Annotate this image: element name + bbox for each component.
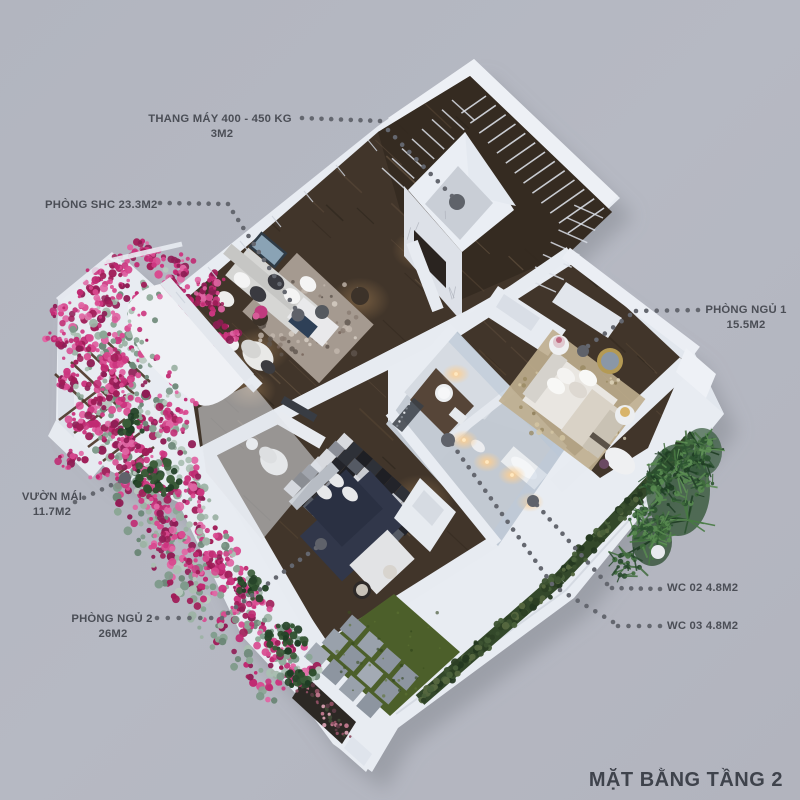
svg-text:11.7M2: 11.7M2 xyxy=(33,506,71,518)
svg-text:MẶT BẰNG TẦNG 2: MẶT BẰNG TẦNG 2 xyxy=(589,767,783,791)
svg-text:3M2: 3M2 xyxy=(211,128,234,140)
svg-text:THANG MÁY 400 - 450 KG: THANG MÁY 400 - 450 KG xyxy=(148,112,292,125)
svg-text:PHÒNG NGỦ 1: PHÒNG NGỦ 1 xyxy=(705,303,786,316)
svg-text:PHÒNG SHC 23.3M2: PHÒNG SHC 23.3M2 xyxy=(45,198,157,211)
svg-text:15.5M2: 15.5M2 xyxy=(727,319,766,331)
svg-text:PHÒNG NGỦ 2: PHÒNG NGỦ 2 xyxy=(71,612,152,625)
svg-text:26M2: 26M2 xyxy=(98,628,127,640)
svg-text:WC 02 4.8M2: WC 02 4.8M2 xyxy=(667,582,738,594)
svg-text:WC 03 4.8M2: WC 03 4.8M2 xyxy=(667,620,738,632)
